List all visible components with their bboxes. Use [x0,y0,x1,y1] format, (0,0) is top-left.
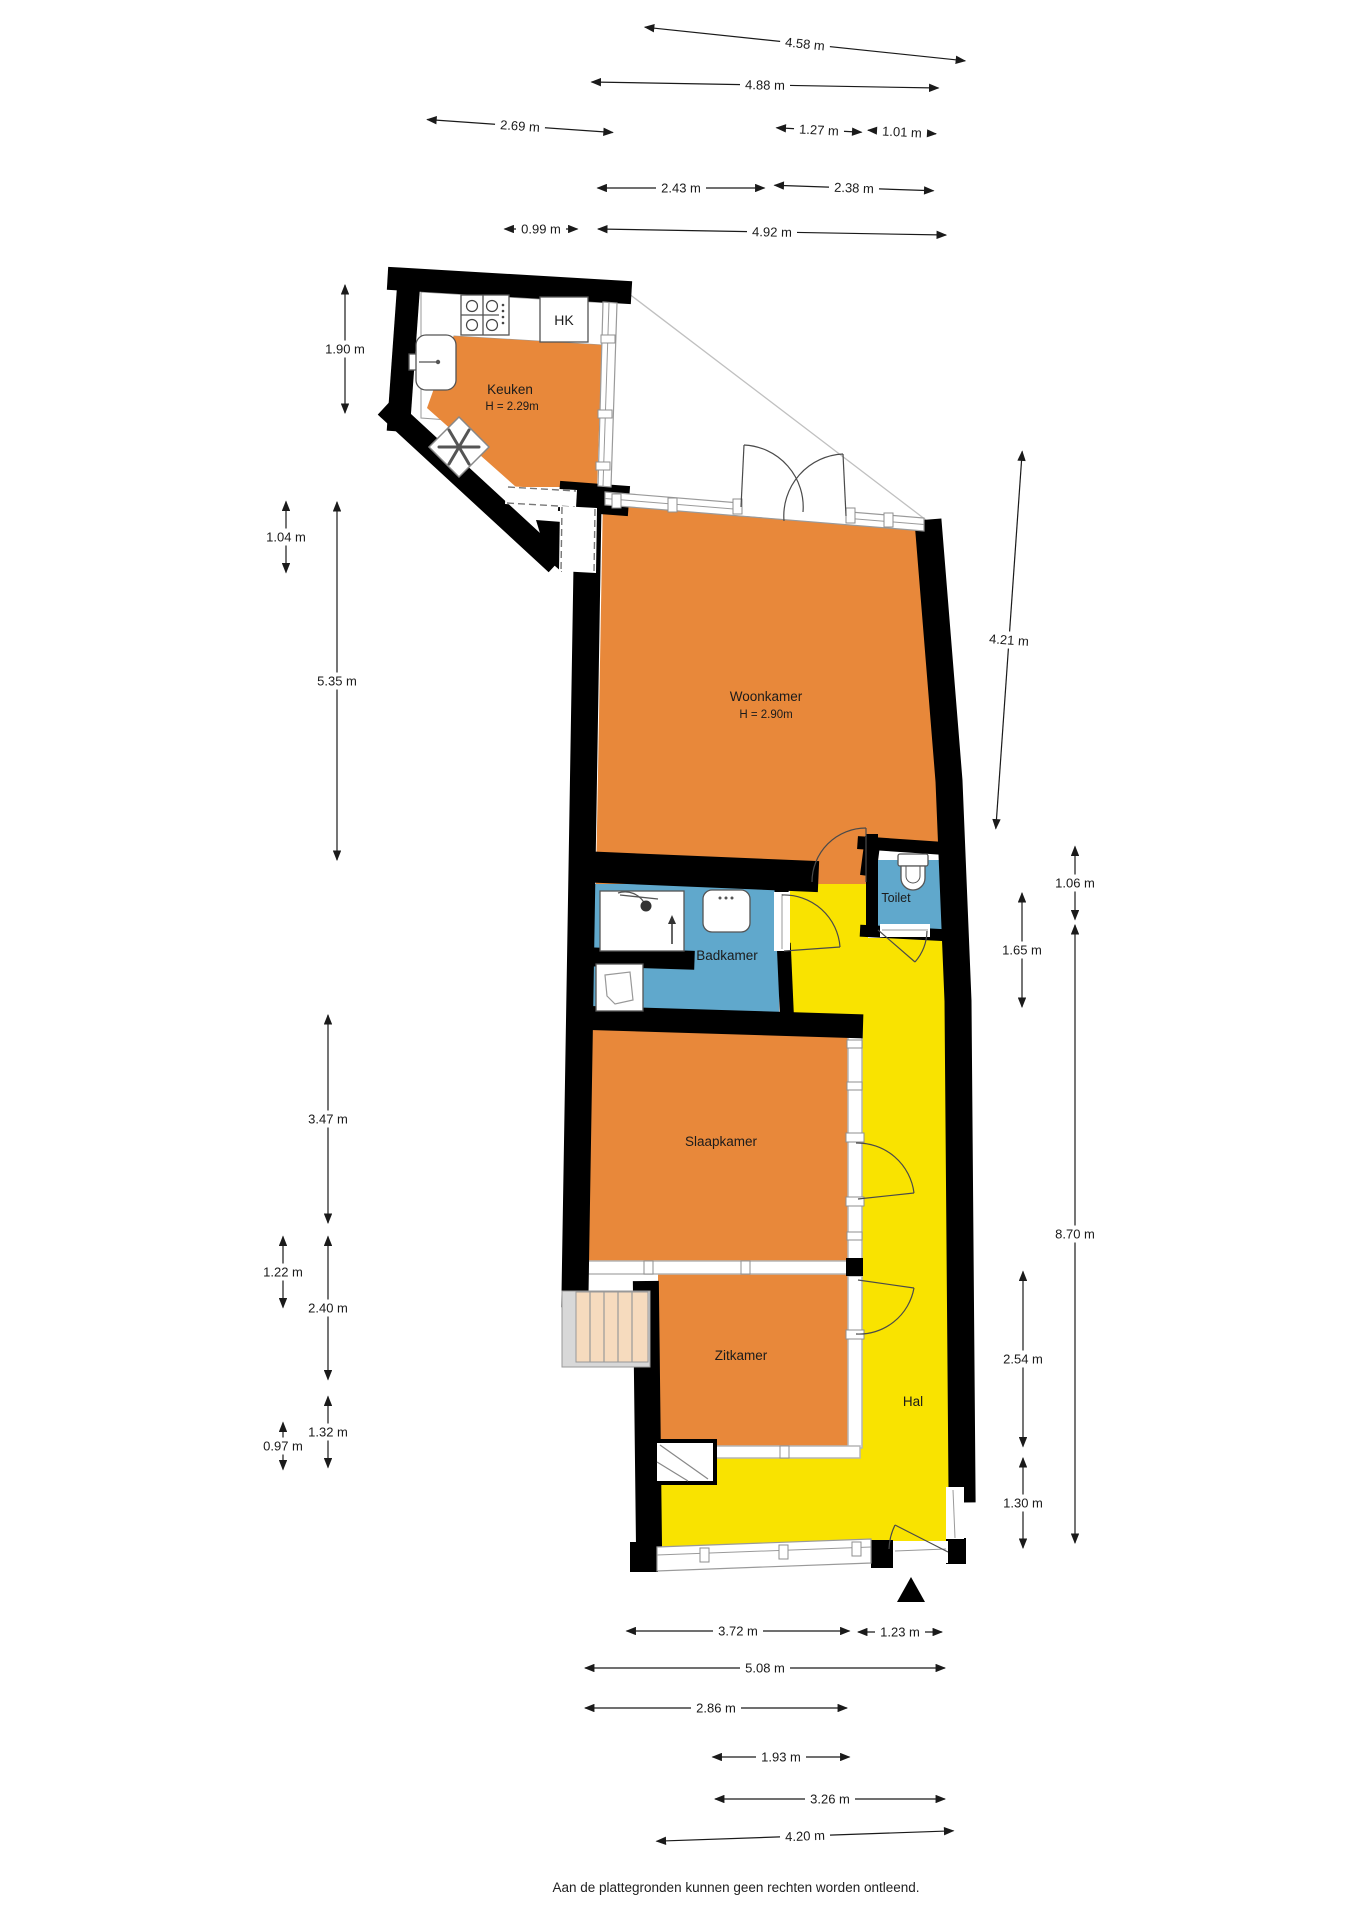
dimension: 2.69 m [427,111,614,141]
windows-part [596,462,610,470]
dimension-label: 1.06 m [1055,876,1095,891]
toilet-fixture-icon [898,854,928,890]
dimension-label: 1.01 m [882,123,922,140]
bathroom-sink-icon-part [719,897,722,900]
dimension-label: 1.32 m [308,1425,348,1440]
windows-part [700,1548,709,1562]
dimension: 1.65 m [997,893,1047,1007]
hal-label: Hal [903,1394,923,1409]
bathroom-sink-icon-part [725,897,728,900]
walls-part [594,957,685,960]
windows-part [846,508,855,523]
walls-part [590,1018,851,1026]
walls-part [630,1542,658,1572]
dimension-label: 1.93 m [761,1750,801,1765]
stove-icon-part [502,316,505,319]
woonkamer-label: Woonkamer [730,689,803,704]
dimension-label: 4.92 m [752,224,792,240]
dimension-label: 0.99 m [521,222,561,237]
windows-part [779,1545,788,1559]
toilet-fixture-icon-part [898,854,928,866]
dimension: 1.32 m [303,1397,353,1468]
dimension: 1.23 m [858,1624,942,1641]
dimension: 1.93 m [713,1749,850,1766]
bathroom-sink-icon-part [703,890,750,932]
partition-frames-part [741,1261,750,1274]
kitchen-sink-icon [409,335,456,390]
dimension: 1.27 m [776,119,862,140]
dimension: 5.08 m [585,1660,945,1677]
toilet-fixture-icon-part [901,866,925,890]
dimension-label: 1.04 m [266,530,306,545]
badkamer-label: Badkamer [696,948,758,963]
bathroom-sink-icon [703,890,750,932]
dimension: 4.88 m [591,73,938,96]
zitkamer-label: Zitkamer [715,1348,768,1363]
partition-zitkamer-hal [848,1276,862,1448]
windows-part [884,513,893,527]
dimension-label: 8.70 m [1055,1227,1095,1242]
keuken-label: Keuken [487,382,533,397]
dimension-label: 2.40 m [308,1301,348,1316]
shower-icon [600,891,684,951]
dimension-label: 1.90 m [325,342,365,357]
entrance-threshold [893,1541,948,1563]
footer-disclaimer: Aan de plattegronden kunnen geen rechten… [552,1880,919,1895]
washing-machine-icon-part [596,964,643,1011]
dimension: 4.92 m [598,220,946,243]
dimension: 1.90 m [320,285,370,413]
washing-machine-icon [596,964,643,1011]
dimension-label: 2.54 m [1003,1352,1043,1367]
dimension: 8.70 m [1050,925,1100,1543]
walls-part [399,279,620,292]
stove-icon-part [502,310,505,313]
woonkamer-corner-opening [559,506,597,573]
dimension-label: 4.88 m [745,77,785,93]
shower-icon-part [641,901,652,912]
dimension-label: 1.30 m [1003,1496,1043,1511]
dimension: 3.72 m [627,1623,850,1640]
partition-frames-part [847,1040,862,1048]
partition-frames-part [847,1232,862,1240]
dimension: 2.43 m [598,180,765,197]
dimension: 4.58 m [644,19,966,70]
dimension-label: 4.21 m [989,631,1030,649]
dimension: 2.54 m [998,1272,1048,1447]
walls-part [592,867,803,876]
french-doors-part [843,454,846,516]
walls-part [784,950,787,1018]
stairs [562,1291,650,1367]
dimension-label: 2.38 m [834,180,874,196]
windows-part [598,410,612,418]
dimension: 1.22 m [258,1237,308,1308]
dimension: 2.40 m [303,1237,353,1380]
partition-slaapkamer-zitkamer [588,1261,848,1274]
walls-part [946,1538,966,1564]
stairs-part [576,1292,648,1362]
dimension-label: 4.20 m [785,1828,825,1844]
dimension: 2.38 m [774,177,933,200]
entrance-marker-icon [897,1577,925,1602]
terrace-boundary-line [624,290,926,520]
walls-part [575,505,588,1294]
dimension: 1.04 m [261,502,311,573]
dimension: 0.99 m [505,221,578,238]
windows-part [852,1542,861,1556]
bathroom-sink-icon-part [731,897,734,900]
dimension: 1.06 m [1050,847,1100,920]
dimension-label: 1.22 m [263,1265,303,1280]
french-doors-part [741,445,744,507]
floorplan-page: HK [0,0,1358,1920]
dimension: 2.86 m [585,1700,847,1717]
windows-part [601,335,615,343]
dimension-label: 3.26 m [810,1792,850,1807]
slaapkamer-label: Slaapkamer [685,1134,758,1149]
kitchen-sink-icon-part [436,360,440,364]
dimension: 1.01 m [868,122,937,143]
walls-part [846,1258,863,1276]
dimension: 3.47 m [303,1015,353,1223]
dimension-label: 5.08 m [745,1661,785,1676]
keuken-height: H = 2.29m [485,401,538,413]
dimension: 3.26 m [715,1791,945,1808]
stove-icon-part [502,304,505,307]
dimension: 4.20 m [656,1822,953,1849]
partition-frames-part [847,1082,862,1090]
dimension-label: 2.69 m [500,117,541,135]
dimension-label: 3.72 m [718,1624,758,1639]
dimension: 0.97 m [258,1423,308,1470]
dimension: 4.21 m [971,450,1047,831]
windows-part [668,498,677,512]
hk-closet: HK [540,297,588,342]
partition-frames-part [846,1133,864,1142]
dimension-label: 0.97 m [263,1439,303,1454]
walls-part [563,1270,587,1293]
dimension-label: 3.47 m [308,1112,348,1127]
dimension-label: 1.27 m [799,121,839,138]
dimension-label: 1.23 m [880,1625,920,1640]
walls-part [399,280,409,420]
woonkamer-height: H = 2.90m [739,709,792,721]
partition-frames-part [644,1261,653,1274]
windows-part [612,494,621,508]
dimension-label: 5.35 m [317,674,357,689]
dimension: 5.35 m [312,502,362,860]
toilet-label: Toilet [881,891,911,905]
dimension-label: 1.65 m [1002,943,1042,958]
stove-icon-part [502,322,505,325]
floorplan-drawing: HK [0,0,1358,1920]
partition-frames-part [780,1446,789,1458]
hk-label: HK [554,312,574,328]
stove-icon [461,295,509,335]
dimension: 1.30 m [998,1458,1048,1548]
dimension-label: 2.86 m [696,1701,736,1716]
dimension-label: 2.43 m [661,181,701,196]
shaft [655,1441,715,1483]
